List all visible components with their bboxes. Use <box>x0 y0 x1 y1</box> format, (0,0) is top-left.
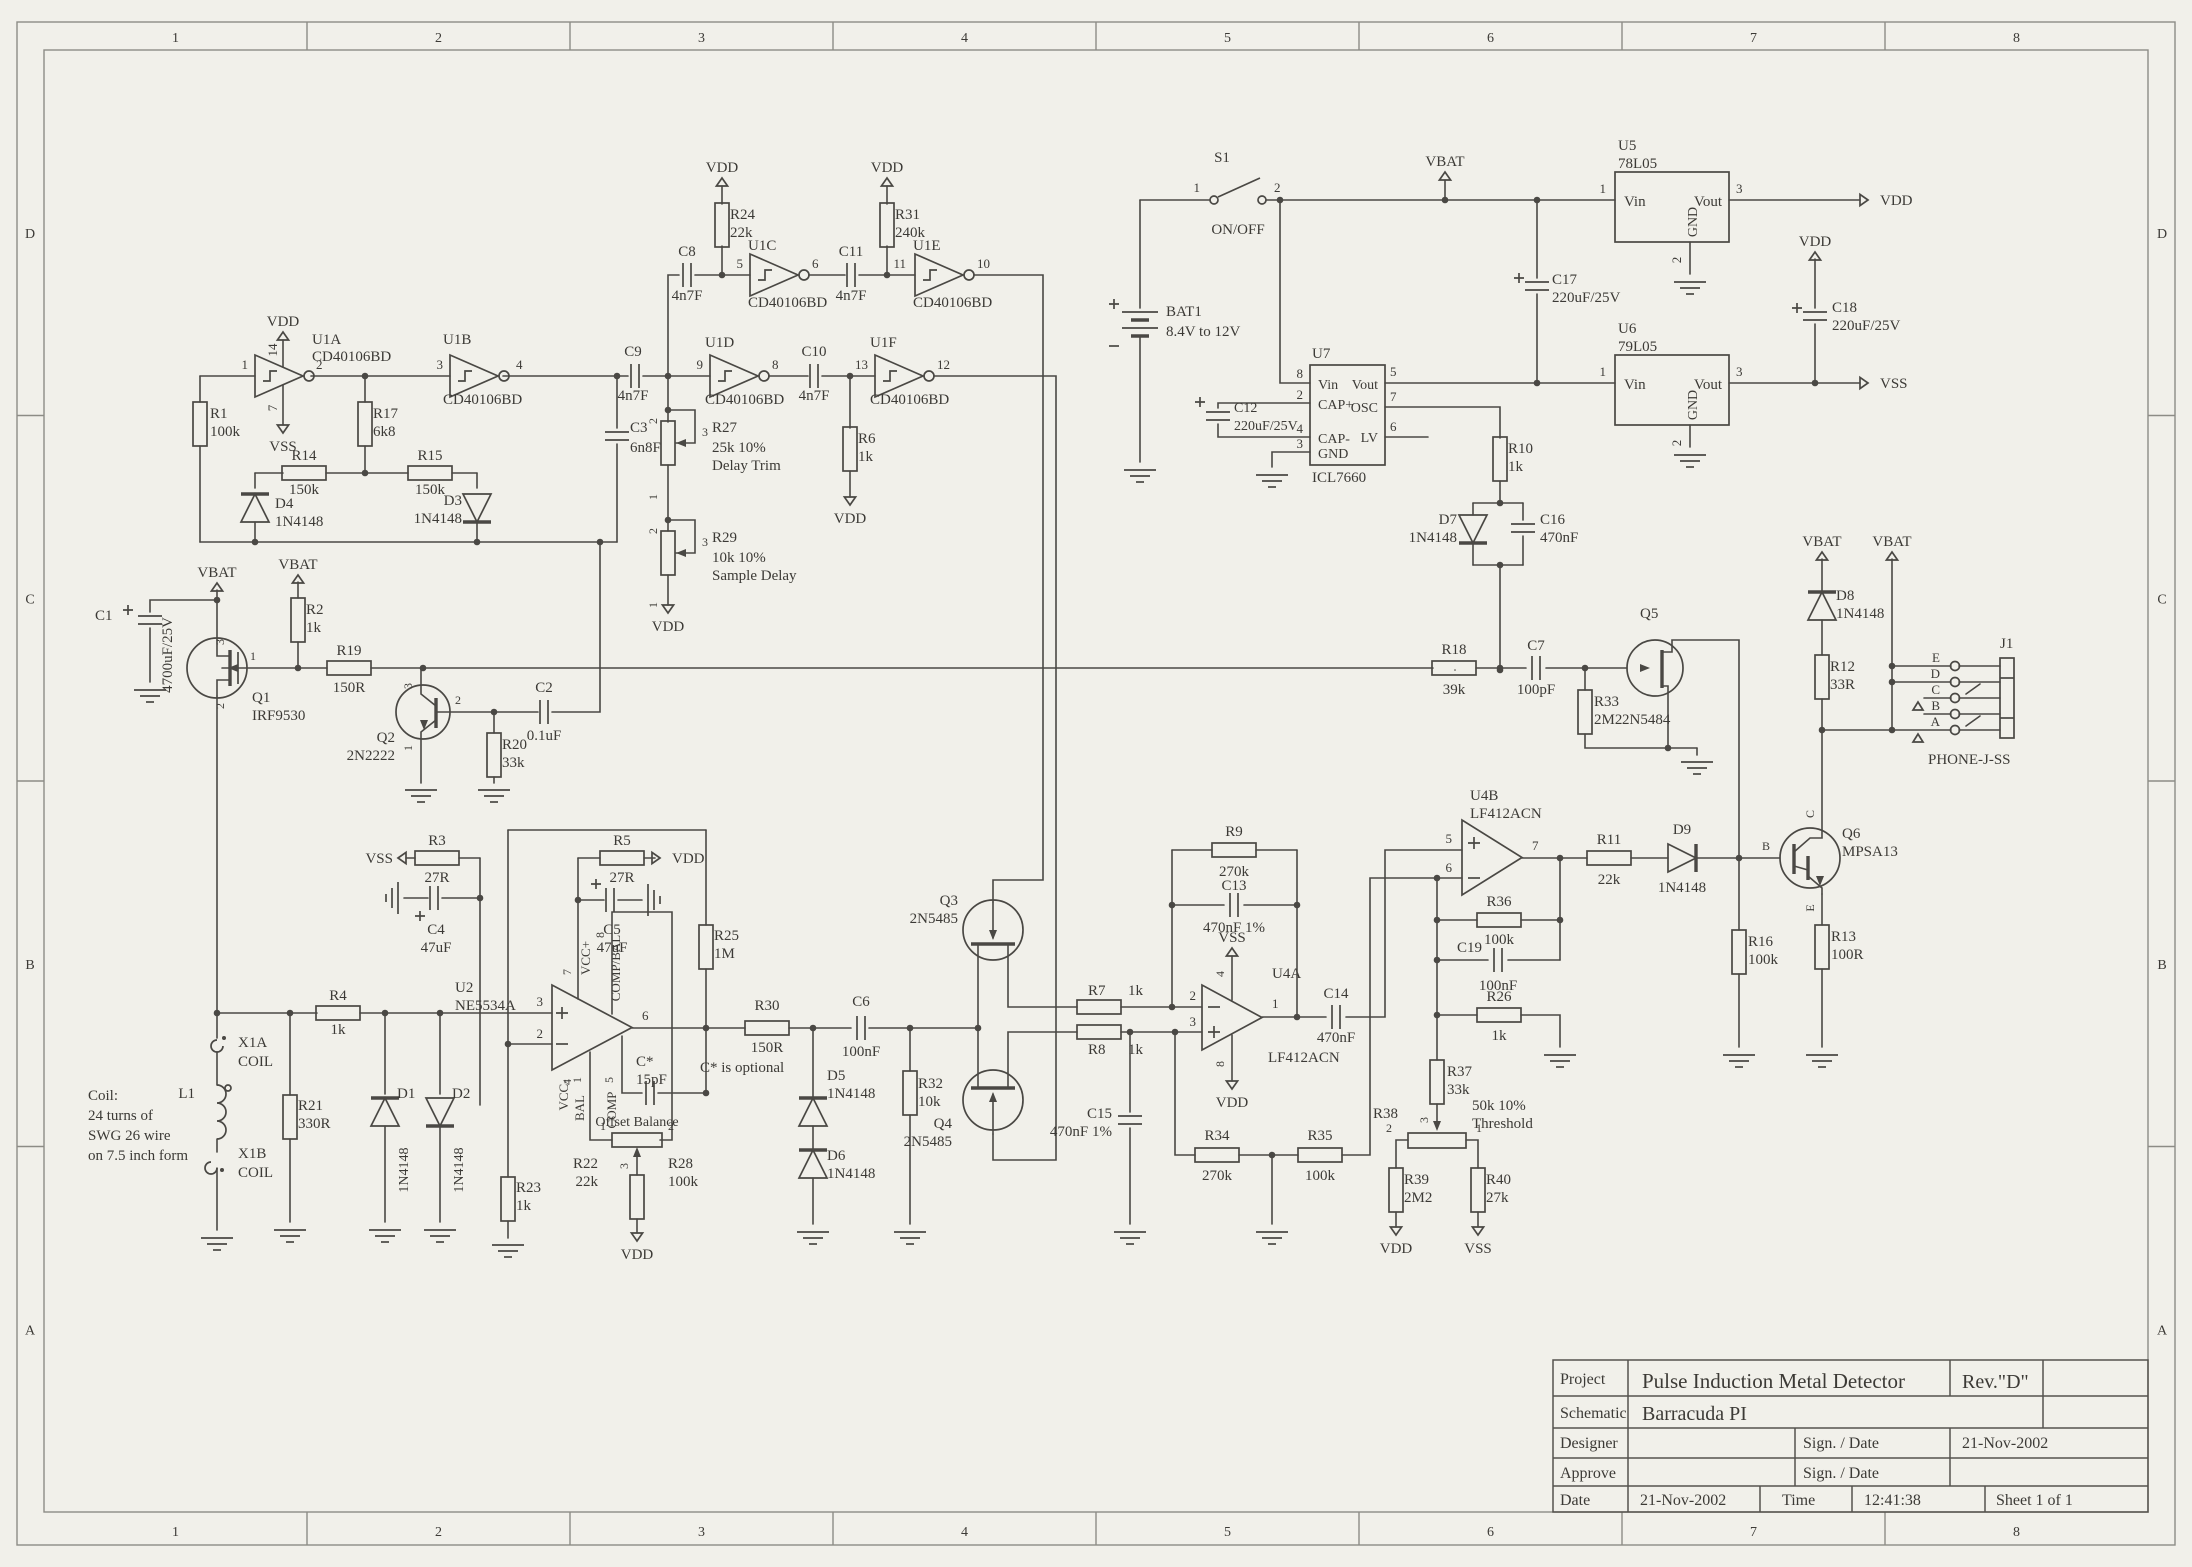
component-label: GND <box>1318 447 1348 462</box>
pin-label: 2 <box>213 703 227 709</box>
component-label: Q5 <box>1640 606 1658 622</box>
pin-label: A <box>1931 714 1941 729</box>
ground-symbol <box>369 1230 401 1242</box>
component-label: 1N4148 <box>1409 530 1457 546</box>
power-flag-down <box>1226 1081 1237 1089</box>
component-label: R35 <box>1307 1128 1332 1144</box>
zone-letter: C <box>2157 592 2166 607</box>
component-label: S1 <box>1214 150 1230 166</box>
schematic-sheet: 1122334455667788DDCCBBAAProjectPulse Ind… <box>0 0 2192 1567</box>
ground-symbol <box>1114 1232 1146 1244</box>
power-net-label: VDD <box>871 160 904 176</box>
pin-label: D <box>1931 666 1940 681</box>
power-flag-up <box>716 178 727 186</box>
zone-letter: B <box>2157 958 2166 973</box>
power-net-label: VDD <box>1880 193 1913 209</box>
component-label: 270k <box>1202 1168 1233 1184</box>
component-label: 220uF/25V <box>1552 290 1621 306</box>
pin-label: 4 <box>1213 971 1227 977</box>
component-label: 1N4148 <box>1658 880 1706 896</box>
gate-bus-q3 <box>974 275 1043 902</box>
resistor-R17 <box>358 402 372 446</box>
pin-label: 6 <box>1390 419 1397 434</box>
component-label: U1F <box>870 335 897 351</box>
resistor-R8 <box>1077 1025 1121 1039</box>
pin-label: 7 <box>1390 389 1397 404</box>
switch-S1-pin <box>1258 196 1266 204</box>
transistor-Q5 <box>1627 640 1683 696</box>
component-label: R4 <box>329 988 347 1004</box>
resistor-R25 <box>699 925 713 969</box>
title-schematic-value: Barracuda PI <box>1642 1403 1747 1425</box>
pin-label: 1 <box>1272 996 1279 1011</box>
component-label: X1B <box>238 1146 266 1162</box>
power-flag-down <box>844 497 855 505</box>
component-label: 0.1uF <box>527 728 562 744</box>
power-flag-up <box>1226 948 1237 956</box>
component-label: 27R <box>609 870 634 886</box>
component-label: R3 <box>428 833 446 849</box>
diode-D1 <box>371 1098 399 1126</box>
pin-label: 2 <box>455 693 461 707</box>
title-approve-label: Approve <box>1560 1465 1616 1482</box>
component-label: BAL <box>572 1095 587 1121</box>
resistor-R36 <box>1477 913 1521 927</box>
connector-J1-pin <box>1951 710 1960 719</box>
pin-label: 1 <box>1194 180 1201 195</box>
component-label: 100k <box>1484 932 1515 948</box>
component-label: 150R <box>333 680 366 696</box>
resistor-R10 <box>1493 437 1507 481</box>
pin-label: 7 <box>560 969 574 975</box>
connector-J1 <box>2000 658 2014 738</box>
component-label: D4 <box>275 496 294 512</box>
component-label: CAP- <box>1318 432 1350 447</box>
component-label: 4n7F <box>799 388 830 404</box>
component-label: R20 <box>502 737 527 753</box>
power-net-label: VDD <box>267 314 300 330</box>
component-label: R1 <box>210 406 228 422</box>
component-label: U7 <box>1312 346 1331 362</box>
component-label: CD40106BD <box>312 349 391 365</box>
pin-label: 3 <box>213 639 227 645</box>
ground-symbol <box>424 1230 456 1242</box>
component-label: NE5534A <box>455 998 516 1014</box>
wire <box>1966 716 1980 726</box>
component-label: Q4 <box>934 1116 953 1132</box>
title-sheet-info: Sheet 1 of 1 <box>1996 1492 2073 1509</box>
power-flag-right <box>1860 377 1868 388</box>
pin-label: 3 <box>702 535 708 549</box>
pin-label: 2 <box>1190 988 1197 1003</box>
component-label: 79L05 <box>1618 339 1657 355</box>
inverter-U1C-bubble <box>799 270 809 280</box>
component-label: C11 <box>839 244 863 260</box>
pin-label: 14 <box>265 343 280 357</box>
polarity-plus <box>1109 299 1119 309</box>
ground-symbol <box>1124 470 1156 482</box>
pin-label: 3 <box>1297 436 1304 451</box>
component-label: 220uF/25V <box>1832 318 1901 334</box>
component-label: C3 <box>630 420 648 436</box>
zone-number: 5 <box>1224 31 1231 46</box>
zone-number: 1 <box>172 1525 179 1540</box>
component-label: R38 <box>1373 1106 1398 1122</box>
zone-number: 4 <box>961 1525 968 1540</box>
pin-label: 1 <box>401 745 415 751</box>
component-label: D7 <box>1439 512 1458 528</box>
junction-dot <box>1557 917 1564 924</box>
component-label: C6 <box>852 994 870 1010</box>
zone-letter: A <box>25 1323 36 1338</box>
component-label: CD40106BD <box>748 295 827 311</box>
component-label: R24 <box>730 207 756 223</box>
pin-label: 2 <box>1297 387 1304 402</box>
power-flag-down <box>631 1233 642 1241</box>
component-label: C19 <box>1457 940 1482 956</box>
wire <box>1794 830 1822 852</box>
wire <box>552 542 600 712</box>
diode-D4 <box>241 494 269 522</box>
resistor-R12 <box>1815 655 1829 699</box>
transistor-Q6 <box>1780 828 1840 888</box>
component-label: R36 <box>1486 894 1512 910</box>
component-label: D1 <box>397 1086 415 1102</box>
component-label: 2N5485 <box>904 1134 952 1150</box>
component-label: R5 <box>613 833 631 849</box>
component-label: 2N5485 <box>910 911 958 927</box>
power-flag-down <box>277 425 288 433</box>
resistor-R7 <box>1077 1000 1121 1014</box>
wire <box>1280 200 1310 383</box>
component-label: 78L05 <box>1618 156 1657 172</box>
pin-label: E <box>1803 904 1817 911</box>
note: Offset Balance <box>595 1115 678 1130</box>
resistor-R18 <box>1432 661 1476 675</box>
diode-D9 <box>1668 844 1696 872</box>
diode-D2 <box>426 1098 454 1126</box>
resistor-R22 <box>630 1175 644 1219</box>
pin-label: 12 <box>937 357 950 372</box>
pin-label: 8 <box>1213 1061 1227 1067</box>
component-label: L1 <box>178 1086 195 1102</box>
power-net-label: VDD <box>652 619 685 635</box>
resistor-R6 <box>843 427 857 471</box>
zone-number: 4 <box>961 31 968 46</box>
component-label: 1N4148 <box>414 511 462 527</box>
pin-label: 2 <box>1274 180 1281 195</box>
pin-label: 3 <box>1190 1014 1197 1029</box>
component-label: 1N4148 <box>452 1147 467 1192</box>
ground-symbol <box>1674 455 1706 467</box>
arrow-head <box>989 930 997 940</box>
wire <box>1008 944 1077 1007</box>
jack-contact-arrow <box>1913 702 1923 710</box>
component-label: U6 <box>1618 321 1637 337</box>
component-label: 22k <box>1598 872 1621 888</box>
pin-label: 3 <box>437 357 444 372</box>
resistor-R9 <box>1212 843 1256 857</box>
diode-D5 <box>799 1098 827 1126</box>
component-label: Vin <box>1318 378 1338 393</box>
component-label: D5 <box>827 1068 845 1084</box>
component-label: Vout <box>1352 378 1378 393</box>
schmitt-glyph <box>758 270 772 280</box>
component-label: R23 <box>516 1180 541 1196</box>
pin-label: 9 <box>697 357 704 372</box>
schmitt-glyph <box>263 371 277 381</box>
component-label: C12 <box>1234 401 1257 416</box>
pin-label: 2 <box>1386 1121 1392 1135</box>
resistor-R37 <box>1430 1060 1444 1104</box>
inverter-U1C <box>750 254 798 296</box>
pin-label: 6 <box>1446 860 1453 875</box>
power-net-label: VSS <box>1464 1241 1492 1257</box>
component-label: 33k <box>502 755 525 771</box>
component-label: 470nF <box>1540 530 1578 546</box>
wire <box>1794 866 1808 870</box>
component-label: 470nF 1% <box>1050 1124 1112 1140</box>
pin-label: C <box>1931 682 1940 697</box>
title-time-label: Time <box>1782 1492 1815 1509</box>
gate-bus-q4 <box>934 376 1056 1160</box>
component-label: R14 <box>291 448 317 464</box>
component-label: 1k <box>331 1022 347 1038</box>
component-label: C7 <box>1527 638 1545 654</box>
wire <box>668 520 695 553</box>
component-label: 15pF <box>636 1072 667 1088</box>
component-label: ICL7660 <box>1312 470 1366 486</box>
component-label: R2 <box>306 602 324 618</box>
pin-label: E <box>1932 650 1940 665</box>
zone-number: 8 <box>2013 1525 2020 1540</box>
coil-connector-pin <box>220 1168 224 1172</box>
connector-J1-pin <box>1951 726 1960 735</box>
component-label: C4 <box>427 922 445 938</box>
component-label: 470nF 1% <box>1203 920 1265 936</box>
power-net-label: VBAT <box>1802 534 1841 550</box>
component-label: COMP/BAL <box>608 935 623 1002</box>
ground-symbol <box>1256 1232 1288 1244</box>
polarity-plus <box>1514 273 1524 283</box>
component-label: 2N5484 <box>1622 712 1671 728</box>
component-label: Q6 <box>1842 826 1861 842</box>
switch-S1-lever <box>1218 178 1260 197</box>
resistor-R13 <box>1815 925 1829 969</box>
ground-symbol <box>478 790 510 802</box>
component-label: 100R <box>1831 947 1864 963</box>
component-label: 150R <box>751 1040 784 1056</box>
component-label: GND <box>1686 390 1701 420</box>
title-schematic-label: Schematic <box>1560 1405 1627 1422</box>
resistor-R23 <box>501 1177 515 1221</box>
pin-label: 1 <box>600 1119 606 1133</box>
component-label: 1M <box>714 946 735 962</box>
component-label: R21 <box>298 1098 323 1114</box>
component-label: U5 <box>1618 138 1636 154</box>
power-flag-down <box>1472 1227 1483 1235</box>
component-label: 6k8 <box>373 424 396 440</box>
wire <box>217 680 230 696</box>
zone-letter: C <box>25 592 34 607</box>
zone-number: 2 <box>435 31 442 46</box>
component-label: U1A <box>312 332 341 348</box>
component-label: 4700uF/25V <box>160 617 176 693</box>
component-label: 1k <box>1492 1028 1508 1044</box>
arrow-head <box>989 1092 997 1102</box>
resistor-R32 <box>903 1071 917 1115</box>
wire <box>1466 1140 1478 1168</box>
pin-label: 2 <box>1669 440 1684 447</box>
power-flag-up <box>277 332 288 340</box>
junction-dot <box>1169 902 1176 909</box>
ground-symbol <box>1256 475 1288 487</box>
wire <box>1346 850 1462 1017</box>
pin-label: 5 <box>1446 831 1453 846</box>
sheet-inner-border <box>44 50 2148 1512</box>
component-label: U1E <box>913 238 941 254</box>
component-label: ON/OFF <box>1211 222 1264 238</box>
component-label: R13 <box>1831 929 1856 945</box>
pin-label: 6 <box>812 256 819 271</box>
resistor-R26 <box>1477 1008 1521 1022</box>
ground-symbol <box>1806 1055 1838 1067</box>
zone-number: 1 <box>172 31 179 46</box>
component-label: CAP+ <box>1318 398 1353 413</box>
zone-number: 2 <box>435 1525 442 1540</box>
pin-label: 5 <box>602 1077 616 1083</box>
component-label: 100k <box>1748 952 1779 968</box>
component-label: R6 <box>858 431 876 447</box>
ground-symbol <box>201 1238 233 1250</box>
component-label: COIL <box>238 1165 273 1181</box>
note: SWG 26 wire <box>88 1128 171 1144</box>
component-label: Q1 <box>252 690 270 706</box>
ground-symbol <box>797 1232 829 1244</box>
note: C* is optional <box>700 1060 784 1076</box>
component-label: C14 <box>1323 986 1349 1002</box>
resistor-R40 <box>1471 1168 1485 1212</box>
component-label: D8 <box>1836 588 1854 604</box>
junction-dot <box>1497 665 1504 672</box>
component-label: 100pF <box>1517 682 1555 698</box>
component-label: C10 <box>801 344 826 360</box>
component-label: C2 <box>535 680 553 696</box>
pin-label: 1 <box>570 1077 584 1083</box>
arrow-head <box>676 549 686 557</box>
component-label: 2N2222 <box>347 748 395 764</box>
arrow-head <box>420 720 428 730</box>
power-net-label: VDD <box>706 160 739 176</box>
pin-label: 2 <box>1669 257 1684 264</box>
arrow-head <box>676 439 686 447</box>
inductor-tap <box>225 1085 231 1091</box>
polarity-plus <box>1195 397 1205 407</box>
ground-symbol <box>894 1232 926 1244</box>
resistor-R29 <box>661 531 675 575</box>
pin-label: 1 <box>1476 1121 1482 1135</box>
note: Coil: <box>88 1088 118 1104</box>
pin-label: 4 <box>516 357 523 372</box>
component-label: IRF9530 <box>252 708 305 724</box>
component-label: R30 <box>754 998 779 1014</box>
component-label: 100nF <box>842 1044 880 1060</box>
resistor-R11 <box>1587 851 1631 865</box>
junction-dot <box>1294 902 1301 909</box>
resistor-R15 <box>408 466 452 480</box>
component-label: 1N4148 <box>275 514 323 530</box>
ground-symbol <box>405 790 437 802</box>
component-label: 4n7F <box>618 388 649 404</box>
resistor-R16 <box>1732 930 1746 974</box>
inverter-U1B <box>450 355 498 397</box>
component-label: 1k <box>516 1198 532 1214</box>
note: on 7.5 inch form <box>88 1148 188 1164</box>
arrow-head <box>1433 1121 1441 1131</box>
diode-D6 <box>799 1150 827 1178</box>
wire <box>1521 1015 1560 1047</box>
component-label: 33k <box>1447 1082 1470 1098</box>
connector-J1-pin <box>1951 694 1960 703</box>
title-signdate-label: Sign. / Date <box>1803 1465 1879 1482</box>
component-label: 10k <box>918 1094 941 1110</box>
component-label: CD40106BD <box>870 392 949 408</box>
connector-J1-pin <box>1951 662 1960 671</box>
pin-label: 8 <box>772 357 779 372</box>
wire <box>1966 684 1980 694</box>
polarity-plus <box>1792 303 1802 313</box>
title-designer-date: 21-Nov-2002 <box>1962 1435 2048 1452</box>
component-label: CD40106BD <box>443 392 522 408</box>
inverter-U1D <box>710 355 758 397</box>
wire <box>668 410 695 443</box>
component-label: 1N4148 <box>827 1086 875 1102</box>
title-project-label: Project <box>1560 1371 1606 1388</box>
component-label: 1N4148 <box>397 1147 412 1192</box>
component-label: 1k <box>1508 459 1524 475</box>
polarity-plus <box>591 879 601 889</box>
resistor-R39 <box>1389 1168 1403 1212</box>
component-label: Vin <box>1624 194 1646 210</box>
schmitt-glyph <box>923 270 937 280</box>
pin-label: 5 <box>1390 364 1397 379</box>
component-label: R19 <box>336 643 361 659</box>
component-label: U1D <box>705 335 734 351</box>
component-label: 33R <box>1830 677 1855 693</box>
component-label: 220uF/25V <box>1234 419 1298 434</box>
component-label: 330R <box>298 1116 331 1132</box>
pin-label: B <box>1762 839 1770 853</box>
component-label: R16 <box>1748 934 1774 950</box>
coil-connector-pin <box>222 1036 226 1040</box>
pin-label: 3 <box>1736 364 1743 379</box>
power-net-label: VDD <box>1799 234 1832 250</box>
component-label: 27R <box>424 870 449 886</box>
power-net-label: VSS <box>1880 376 1908 392</box>
wire <box>150 600 217 612</box>
component-label: PHONE-J-SS <box>1928 752 2011 768</box>
component-label: LV <box>1361 431 1378 446</box>
component-label: CD40106BD <box>705 392 784 408</box>
component-label: C16 <box>1540 512 1566 528</box>
component-label: R15 <box>417 448 442 464</box>
component-label: 1N4148 <box>827 1166 875 1182</box>
title-date-value: 21-Nov-2002 <box>1640 1492 1726 1509</box>
component-label: Sample Delay <box>712 568 797 584</box>
pin-label: B <box>1931 698 1940 713</box>
zone-letter: D <box>2157 227 2167 242</box>
pin-label: 10 <box>977 256 990 271</box>
